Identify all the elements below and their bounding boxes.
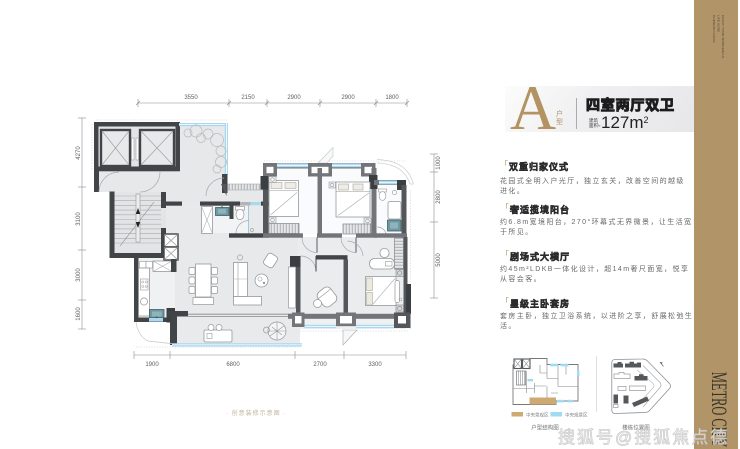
svg-text:1800: 1800 (385, 95, 399, 101)
svg-text:3300: 3300 (368, 362, 382, 368)
svg-text:3550: 3550 (184, 95, 198, 101)
svg-text:5000: 5000 (436, 253, 442, 267)
svg-text:2900: 2900 (341, 95, 355, 101)
svg-text:1600: 1600 (76, 307, 82, 321)
svg-text:2900: 2900 (287, 95, 301, 101)
svg-text:3100: 3100 (76, 212, 82, 226)
svg-text:4270: 4270 (76, 146, 82, 160)
svg-text:6800: 6800 (226, 362, 240, 368)
svg-text:1000: 1000 (436, 156, 442, 170)
svg-text:2700: 2700 (313, 362, 327, 368)
svg-text:1900: 1900 (145, 362, 159, 368)
svg-text:3000: 3000 (76, 268, 82, 282)
svg-text:2800: 2800 (436, 190, 442, 204)
svg-text:2150: 2150 (241, 95, 255, 101)
